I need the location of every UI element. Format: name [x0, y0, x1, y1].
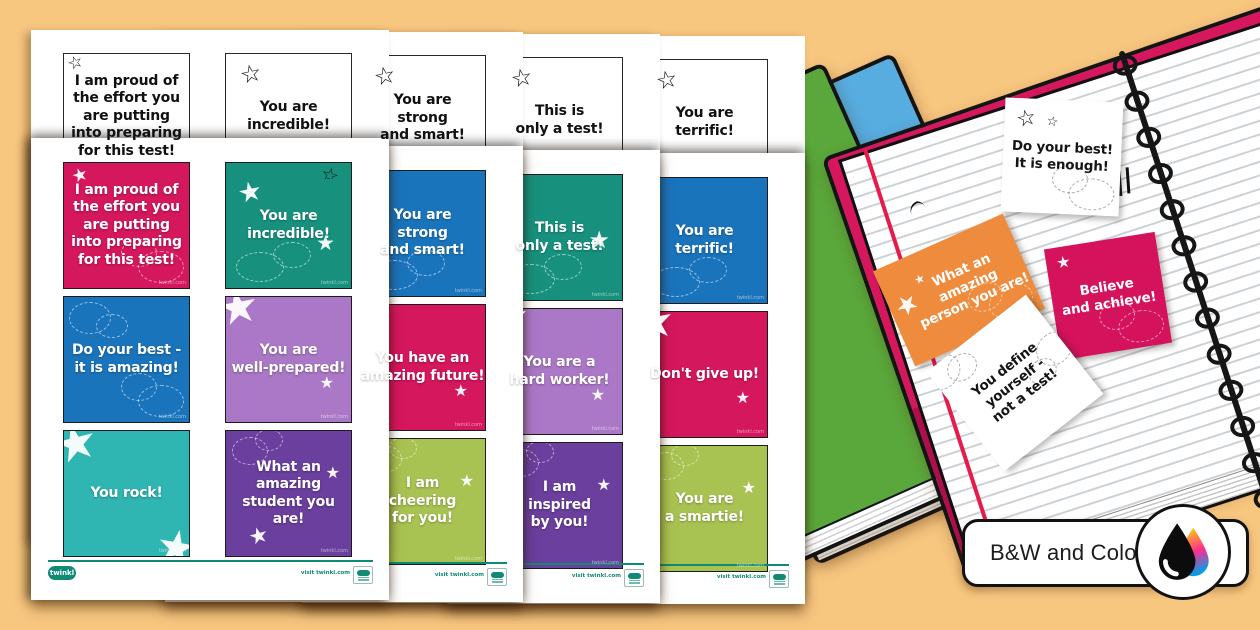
card-text: You have an amazing future!	[361, 350, 485, 385]
note-card-do-your-best: ☆ ☆ Do your best! It is enough!	[1001, 97, 1124, 216]
watermark: twinkl.com	[592, 292, 619, 298]
watermark: twinkl.com	[737, 563, 764, 569]
affirmation-card: ★ ★ Don't give up! twinkl.com	[641, 311, 768, 438]
card-text: I am cheering for you!	[389, 475, 456, 527]
watermark: twinkl.com	[592, 426, 619, 432]
affirmation-card: Do your best - it is amazing! twinkl.com	[63, 296, 190, 423]
line-decoration	[774, 581, 785, 583]
card-text: Do your best - it is amazing!	[72, 342, 181, 377]
doodle-icon	[1068, 177, 1115, 211]
watermark: twinkl.com	[737, 429, 764, 435]
watermark: twinkl.com	[159, 414, 186, 420]
line-decoration	[492, 581, 503, 583]
star-icon: ★	[591, 387, 605, 403]
card-text: This is only a test!	[516, 103, 604, 138]
line-decoration	[629, 580, 640, 582]
visit-link-group: visit twinkl.com	[435, 568, 507, 586]
card-text: This is only a test!	[516, 220, 604, 255]
watermark: twinkl.com	[321, 414, 348, 420]
affirmation-card: ★ ★ You are well-prepared! twinkl.com	[225, 296, 352, 423]
cloud-icon	[491, 572, 504, 578]
star-icon: ★	[63, 430, 103, 473]
badge-label: B&W and Color	[965, 540, 1144, 566]
card-text: You are strong and smart!	[380, 92, 465, 144]
star-icon: ★	[1055, 254, 1072, 272]
card-text: I am proud of the effort you are putting…	[71, 182, 182, 269]
card-text: I am proud of the effort you are putting…	[71, 73, 182, 160]
star-outline-icon: ☆	[654, 66, 680, 94]
twinkl-logo: twinkl	[48, 566, 76, 580]
color-sheet-1: ★ I am proud of the effort you are putti…	[31, 138, 389, 600]
doodle-icon	[1116, 307, 1166, 346]
watermark: twinkl.com	[455, 556, 482, 562]
line-decoration	[358, 577, 369, 579]
visit-url: visit twinkl.com	[572, 573, 621, 579]
affirmation-card: ★ You are terrific! twinkl.com	[641, 177, 768, 304]
star-icon: ★	[496, 231, 509, 253]
bw-and-color-badge: B&W and Color	[962, 519, 1249, 587]
watermark: twinkl.com	[321, 548, 348, 554]
line-decoration	[358, 579, 369, 581]
star-icon: ★	[641, 234, 654, 256]
watermark: twinkl.com	[592, 560, 619, 566]
note-card-believe-achieve: ★ Believe and achieve!	[1044, 232, 1172, 360]
twinkl-badge-icon	[487, 568, 507, 586]
card-text: You are a hard worker!	[510, 354, 610, 389]
preview-canvas: ☆ You are terrific! ★ You are terrific! …	[0, 0, 1260, 630]
doodle-icon	[236, 252, 284, 282]
card-text: You rock!	[90, 485, 162, 502]
star-outline-icon: ☆	[1014, 107, 1038, 133]
visit-url: visit twinkl.com	[717, 574, 766, 580]
twinkl-badge-icon	[353, 566, 373, 584]
color-card-grid: ★ I am proud of the effort you are putti…	[31, 138, 389, 557]
star-icon: ★	[736, 390, 750, 406]
line-decoration	[629, 582, 640, 584]
line-decoration	[492, 579, 503, 581]
affirmation-card: ★ ★ What an amazing student you are! twi…	[225, 430, 352, 557]
watermark: twinkl.com	[455, 422, 482, 428]
card-text: You are strong and smart!	[380, 207, 465, 259]
card-text: You are terrific!	[675, 223, 734, 258]
watermark: twinkl.com	[159, 548, 186, 554]
doodle-icon	[69, 302, 111, 334]
affirmation-card: ★ I am proud of the effort you are putti…	[63, 162, 190, 289]
star-icon: ★	[359, 304, 397, 342]
cloud-icon	[628, 573, 641, 579]
visit-url: visit twinkl.com	[301, 570, 350, 576]
star-icon: ★	[597, 477, 611, 493]
star-outline-icon: ☆	[238, 60, 264, 88]
star-outline-icon: ☆	[1045, 114, 1059, 129]
card-text: What an amazing student you are!	[226, 459, 351, 528]
watermark: twinkl.com	[737, 295, 764, 301]
star-icon: ★	[460, 473, 474, 489]
visit-link-group: visit twinkl.com	[717, 570, 789, 588]
star-icon: ★	[454, 383, 468, 399]
affirmation-card: ★ ★ You are incredible! twinkl.com	[225, 162, 352, 289]
page-footer: twinkl visit twinkl.com	[48, 560, 373, 590]
card-text: You are incredible!	[247, 208, 330, 243]
star-icon: ★	[496, 308, 534, 346]
star-icon: ★	[641, 311, 679, 349]
star-outline-icon: ☆	[372, 62, 398, 90]
card-text: Don't give up!	[650, 366, 759, 383]
watermark: twinkl.com	[455, 288, 482, 294]
watermark: twinkl.com	[321, 280, 348, 286]
card-text: You are incredible!	[247, 99, 330, 134]
bw-color-droplet-icon	[1150, 519, 1216, 585]
droplet-circle	[1135, 504, 1231, 600]
star-icon: ★	[225, 296, 263, 334]
watermark: twinkl.com	[159, 280, 186, 286]
visit-link-group: visit twinkl.com	[572, 569, 644, 587]
twinkl-badge-icon	[624, 569, 644, 587]
card-text: You are terrific!	[675, 105, 734, 140]
star-outline-icon: ☆	[319, 163, 342, 180]
card-text: I am inspired by you!	[528, 479, 591, 531]
cloud-icon	[773, 574, 786, 580]
visit-url: visit twinkl.com	[435, 572, 484, 578]
line-decoration	[774, 583, 785, 585]
star-icon: ★	[359, 227, 372, 249]
star-icon: ★	[235, 177, 264, 208]
visit-link-group: visit twinkl.com	[301, 566, 373, 584]
card-text: You are well-prepared!	[232, 342, 346, 377]
cloud-icon	[357, 570, 370, 576]
affirmation-card: ★ ★ You rock! twinkl.com	[63, 430, 190, 557]
affirmation-card: ★ ★ You are a smartie! twinkl.com	[641, 445, 768, 572]
star-outline-icon: ☆	[66, 53, 86, 74]
twinkl-badge-icon	[769, 570, 789, 588]
star-icon: ★	[320, 375, 334, 391]
doodle-icon	[138, 385, 184, 417]
card-text: Do your best! It is enough!	[1011, 138, 1113, 176]
star-outline-icon: ☆	[509, 64, 535, 92]
card-text: You are a smartie!	[665, 491, 744, 526]
